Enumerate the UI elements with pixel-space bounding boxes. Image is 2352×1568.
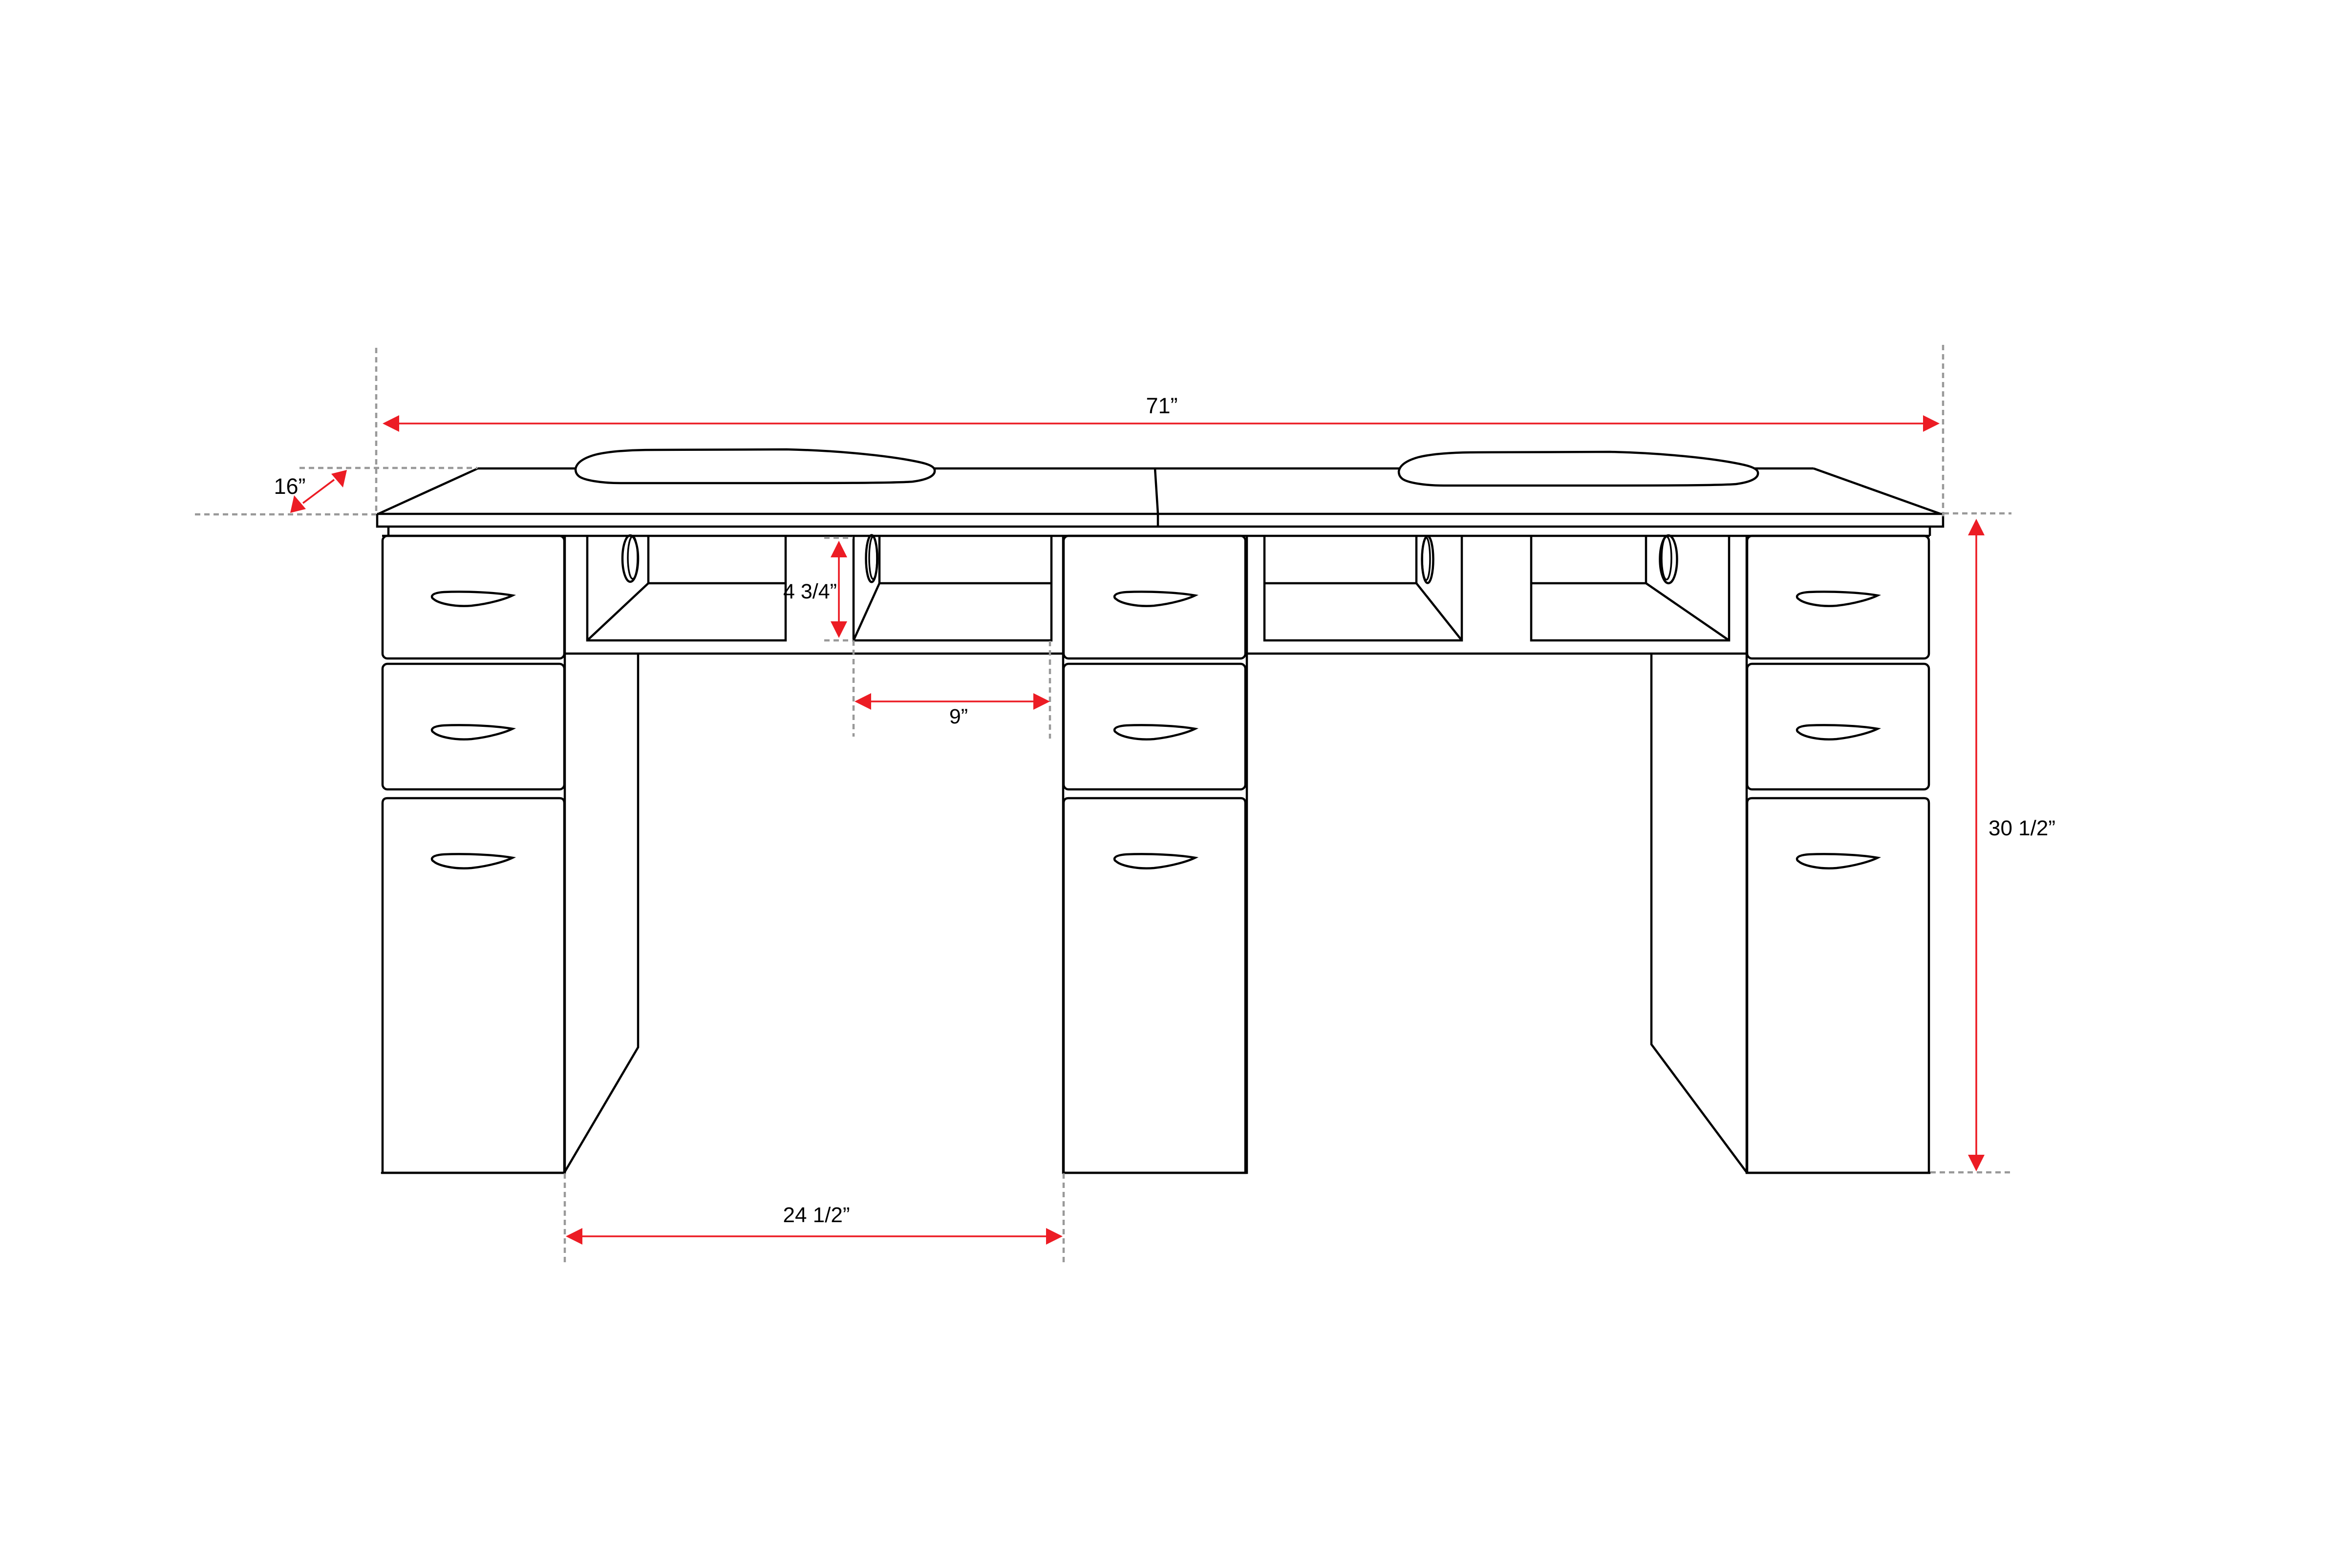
svg-text:9”: 9” (949, 705, 968, 728)
svg-text:16”: 16” (274, 474, 305, 499)
svg-text:24 1/2”: 24 1/2” (783, 1203, 850, 1227)
svg-text:4 3/4”: 4 3/4” (783, 580, 837, 603)
svg-text:71”: 71” (1146, 393, 1177, 418)
svg-text:30 1/2”: 30 1/2” (1989, 816, 2055, 840)
